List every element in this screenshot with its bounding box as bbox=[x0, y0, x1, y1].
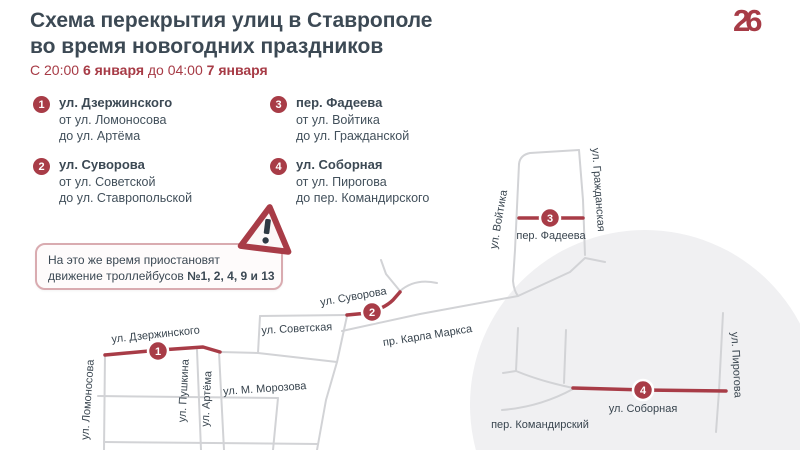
warning-triangle-icon bbox=[233, 195, 302, 262]
road-sovetskaya bbox=[260, 315, 347, 316]
road-top-connector bbox=[519, 150, 579, 164]
map-marker-1: 1 bbox=[148, 341, 168, 361]
street-map: ул. Войтика пер. Фадеева ул. Гражданская… bbox=[0, 0, 800, 450]
map-marker-2: 2 bbox=[362, 302, 382, 322]
road-artyoma bbox=[219, 352, 224, 450]
svg-text:1: 1 bbox=[155, 346, 161, 358]
street-label-sobornaya: ул. Соборная bbox=[609, 403, 678, 415]
road-bottom-street bbox=[104, 442, 318, 444]
svg-text:2: 2 bbox=[369, 307, 375, 319]
street-label-sovetskaya: ул. Советская bbox=[261, 321, 332, 337]
street-label-artyoma: ул. Артёма bbox=[200, 370, 215, 427]
infographic-page: ул. Войтика пер. Фадеева ул. Гражданская… bbox=[0, 0, 800, 450]
street-label-voitika: ул. Войтика bbox=[488, 188, 510, 250]
street-label-karla-marksa: пр. Карла Маркса bbox=[382, 323, 474, 349]
road-lomonosova bbox=[104, 354, 105, 450]
street-label-grazhdanskaya: ул. Гражданская bbox=[589, 147, 607, 232]
street-label-komandirsky: пер. Командирский bbox=[491, 419, 589, 431]
road-dzerzhinskogo-ext bbox=[220, 352, 337, 362]
map-marker-3: 3 bbox=[540, 208, 560, 228]
road-vertical-277 bbox=[273, 398, 278, 450]
road-sovetskaya-corner bbox=[258, 316, 260, 353]
street-label-fadeeva: пер. Фадеева bbox=[516, 230, 586, 242]
street-label-lomonosova: ул. Ломоносова bbox=[79, 358, 97, 440]
road-suvorova-branch bbox=[400, 282, 437, 291]
svg-text:4: 4 bbox=[640, 385, 647, 397]
warning-line2: движение троллейбусов №1, 2, 4, 9 и 13 bbox=[48, 268, 270, 284]
street-label-morozova: ул. М. Морозова bbox=[223, 380, 308, 398]
map-marker-4: 4 bbox=[633, 380, 653, 400]
svg-text:3: 3 bbox=[547, 213, 553, 225]
warning-line2-bold: №1, 2, 4, 9 и 13 bbox=[187, 269, 274, 283]
road-north-south bbox=[317, 316, 347, 450]
warning-line2-regular: движение троллейбусов bbox=[48, 269, 187, 283]
street-label-pushkina: ул. Пушкина bbox=[176, 358, 191, 423]
map-zone-area bbox=[470, 230, 800, 450]
